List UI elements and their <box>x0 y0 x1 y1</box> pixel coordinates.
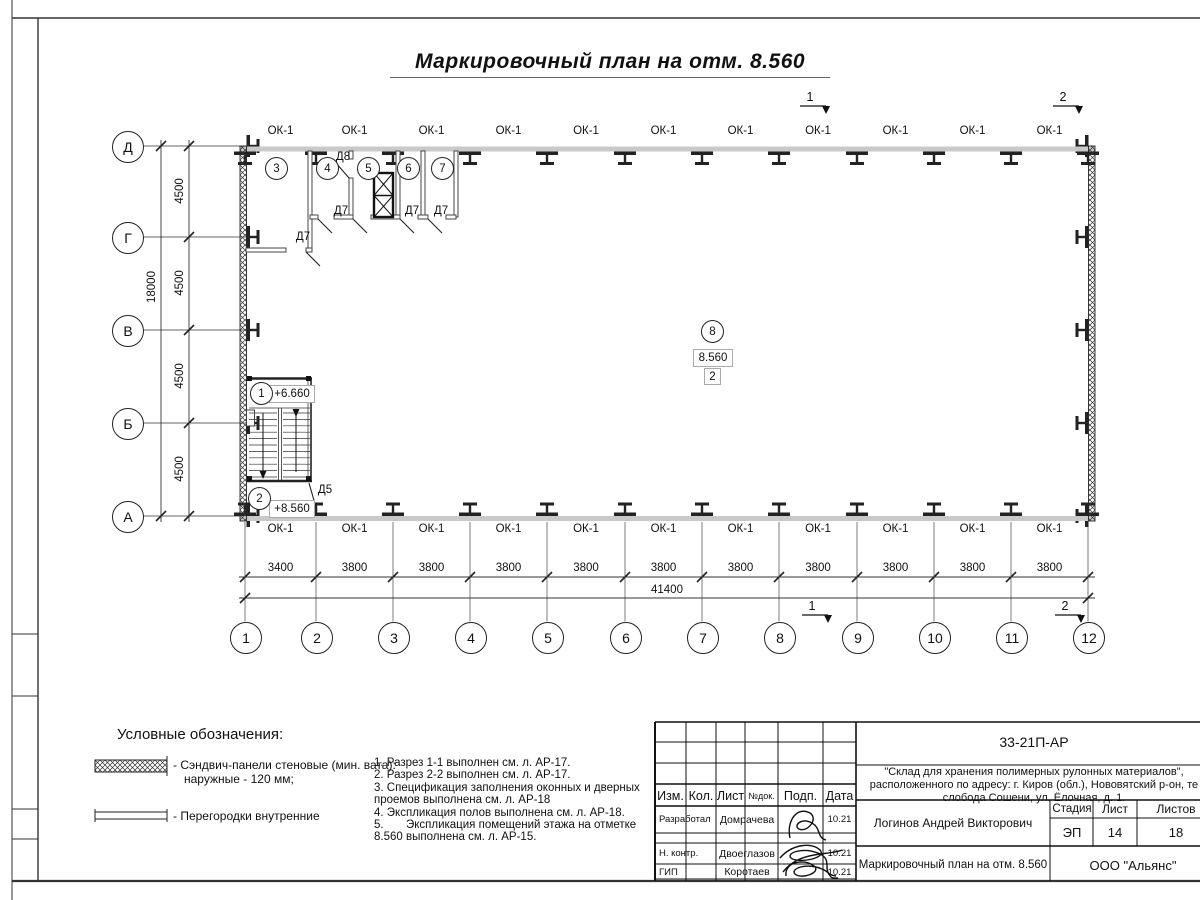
dim-total-left: 18000 <box>146 257 158 317</box>
note-line-5: 5. Экспликация помещений этажа на отметк… <box>374 819 636 831</box>
bottom-exterior-wall <box>240 516 1095 521</box>
window-label-bottom-6: ОК-1 <box>716 523 766 535</box>
doc-number: 33-21П-АР <box>856 726 1200 758</box>
dim-left-bay-0: 4500 <box>174 166 186 216</box>
section-mark-1-top: 1 <box>798 90 822 104</box>
window-label-top-4: ОК-1 <box>561 125 611 137</box>
dim-bottom-bay-4: 3800 <box>561 562 611 574</box>
elevation-box-room2: +8.560 <box>269 500 315 518</box>
grid-col-bubble-12: 12 <box>1073 622 1105 654</box>
window-label-top-10: ОК-1 <box>1025 125 1075 137</box>
grid-col-bubble-6: 6 <box>610 622 642 654</box>
grid-col-bubble-1: 1 <box>230 622 262 654</box>
top-exterior-wall <box>240 147 1095 152</box>
column-symbol <box>614 152 636 166</box>
drawing-title: Маркировочный план на отм. 8.560 <box>858 855 1048 875</box>
room-number-2: 2 <box>248 487 271 510</box>
signature-domracheva <box>789 811 826 840</box>
door-tag-d7-1: Д7 <box>326 205 356 217</box>
column-symbol <box>614 503 636 517</box>
dim-bottom-bay-2: 3800 <box>407 562 457 574</box>
tb-header-5: Дата <box>823 787 856 804</box>
grid-row-bubble-2: В <box>112 315 144 347</box>
sheet-label: Лист <box>1094 801 1136 817</box>
project-line-1: "Склад для хранения полимерных рулонных … <box>856 766 1200 778</box>
column-symbol <box>923 152 945 166</box>
grid-row-bubble-3: Б <box>112 408 144 440</box>
legend-sandwich-panel-symbol <box>95 760 167 772</box>
dim-bottom-bay-10: 3800 <box>1025 562 1075 574</box>
grid-col-bubble-2: 2 <box>301 622 333 654</box>
door-tag-d7-3: Д7 <box>426 205 456 217</box>
dim-bottom-bay-5: 3800 <box>639 562 689 574</box>
column-symbol <box>768 152 790 166</box>
sheets-total: 18 <box>1138 820 1200 844</box>
section-marks <box>800 106 1085 623</box>
window-label-bottom-3: ОК-1 <box>484 523 534 535</box>
column-symbol <box>846 503 868 517</box>
column-symbol <box>1076 319 1089 341</box>
right-exterior-wall <box>1089 146 1096 521</box>
stage-value: ЭП <box>1051 820 1093 844</box>
window-label-bottom-2: ОК-1 <box>407 523 457 535</box>
legend-item-1-label2: наружные - 120 мм; <box>184 772 294 786</box>
dim-left-bay-1: 4500 <box>174 258 186 308</box>
grid-col-bubble-7: 7 <box>687 622 719 654</box>
column-symbol <box>1000 503 1022 517</box>
grid-row-bubble-4: А <box>112 501 144 533</box>
dim-bottom-bay-9: 3800 <box>948 562 998 574</box>
column-symbol <box>382 503 404 517</box>
grid-col-bubble-3: 3 <box>378 622 410 654</box>
dim-bottom-bay-6: 3800 <box>716 562 766 574</box>
column-symbol <box>459 152 481 166</box>
window-label-bottom-8: ОК-1 <box>871 523 921 535</box>
legend-symbols <box>95 756 167 822</box>
tb-name-1: Двоеглазов <box>716 846 778 861</box>
window-label-top-9: ОК-1 <box>948 125 998 137</box>
room-number-1: 1 <box>250 382 273 405</box>
window-label-top-2: ОК-1 <box>407 125 457 137</box>
window-label-bottom-1: ОК-1 <box>330 523 380 535</box>
page-title: Маркировочный план на отм. 8.560 <box>390 50 830 78</box>
note-line-2: 3. Спецификация заполнения оконных и две… <box>374 782 640 794</box>
column-symbol <box>691 503 713 517</box>
column-symbol <box>247 319 260 341</box>
elevation-box-room8: 8.560 <box>693 349 733 367</box>
company-name: ООО "Альянс" <box>1051 855 1200 875</box>
column-symbol <box>768 503 790 517</box>
column-symbol <box>1000 152 1022 166</box>
elevation-box-room1: +6.660 <box>269 385 315 403</box>
drawing-sheet: Маркировочный план на отм. 8.560 18000 4… <box>0 0 1200 900</box>
room-number-7: 7 <box>431 157 454 180</box>
note-line-0: 1. Разрез 1-1 выполнен см. л. АР-17. <box>374 757 571 769</box>
sheets-label: Листов <box>1138 801 1200 817</box>
column-symbol <box>1076 226 1089 248</box>
window-label-bottom-7: ОК-1 <box>793 523 843 535</box>
section-mark-2-bottom: 2 <box>1053 599 1077 613</box>
window-label-top-3: ОК-1 <box>484 125 534 137</box>
grid-col-bubble-5: 5 <box>532 622 564 654</box>
tb-date-2: 10.21 <box>823 865 856 880</box>
door-tag-d5: Д5 <box>310 484 340 496</box>
tb-header-2: Лист <box>716 787 745 804</box>
room-number-8: 8 <box>701 320 724 343</box>
note-line-6: 8.560 выполнена см. л. АР-15. <box>374 831 536 843</box>
window-label-top-5: ОК-1 <box>639 125 689 137</box>
column-symbol <box>1076 412 1089 434</box>
tb-date-0: 10.21 <box>823 812 856 827</box>
legend-item-1-label: - Сэндвич-панели стеновые (мин. вата): <box>173 758 396 772</box>
room-number-3: 3 <box>265 157 288 180</box>
tb-date-1: 10.21 <box>823 846 856 861</box>
tb-role-2: ГИП <box>659 865 717 880</box>
note-line-3: проемов выполнена см. л. АР-18 <box>374 794 550 806</box>
room-number-5: 5 <box>357 157 380 180</box>
column-symbol <box>459 503 481 517</box>
window-label-bottom-10: ОК-1 <box>1025 523 1075 535</box>
grid-col-bubble-8: 8 <box>764 622 796 654</box>
room-number-6: 6 <box>397 157 420 180</box>
tb-role-0: Разработал <box>659 812 717 827</box>
tb-header-0: Изм. <box>655 787 686 804</box>
stair-arrow-down <box>260 471 267 479</box>
tb-role-1: Н. контр. <box>659 846 717 861</box>
window-label-bottom-4: ОК-1 <box>561 523 611 535</box>
legend-item-2-label: - Перегородки внутренние <box>173 809 320 823</box>
legend-heading: Условные обозначения: <box>117 726 283 743</box>
dim-bottom-bay-8: 3800 <box>871 562 921 574</box>
shaft <box>374 173 393 217</box>
window-label-top-7: ОК-1 <box>793 125 843 137</box>
window-label-top-8: ОК-1 <box>871 125 921 137</box>
window-label-bottom-9: ОК-1 <box>948 523 998 535</box>
window-label-top-0: ОК-1 <box>256 125 306 137</box>
tb-header-3: №док. <box>745 787 778 804</box>
walls <box>240 146 1095 521</box>
sheet-number: 14 <box>1094 820 1136 844</box>
approver-name: Логинов Андрей Викторович <box>858 812 1048 834</box>
project-line-2: расположенного по адресу: г. Киров (обл.… <box>856 779 1200 791</box>
tb-name-2: Коротаев <box>716 865 778 880</box>
dim-bottom-bay-0: 3400 <box>256 562 306 574</box>
note-line-4: 4. Экспликация полов выполнена см. л. АР… <box>374 807 625 819</box>
column-symbol <box>536 503 558 517</box>
dim-total-bottom: 41400 <box>637 584 697 596</box>
grid-row-bubble-0: Д <box>112 131 144 163</box>
floor-type-box-room8: 2 <box>704 368 721 385</box>
tb-name-0: Домрачева <box>716 812 778 827</box>
window-label-bottom-0: ОК-1 <box>256 523 306 535</box>
column-symbol <box>247 226 260 248</box>
dim-bottom-bay-7: 3800 <box>793 562 843 574</box>
grid-col-bubble-11: 11 <box>996 622 1028 654</box>
grid-row-bubble-1: Г <box>112 222 144 254</box>
column-symbol <box>691 152 713 166</box>
window-label-bottom-5: ОК-1 <box>639 523 689 535</box>
stage-label: Стадия <box>1051 801 1093 817</box>
tb-header-4: Подп. <box>778 787 823 804</box>
room-number-4: 4 <box>316 157 339 180</box>
window-label-top-1: ОК-1 <box>330 125 380 137</box>
dim-bottom-bay-1: 3800 <box>330 562 380 574</box>
grid-col-bubble-9: 9 <box>842 622 874 654</box>
note-line-1: 2. Разрез 2-2 выполнен см. л. АР-17. <box>374 769 571 781</box>
window-label-top-6: ОК-1 <box>716 125 766 137</box>
door-tag-d7-2: Д7 <box>397 205 427 217</box>
grid-col-bubble-10: 10 <box>919 622 951 654</box>
dim-left-bay-2: 4500 <box>174 351 186 401</box>
column-symbol <box>923 503 945 517</box>
door-tag-d7-0: Д7 <box>288 231 318 243</box>
dim-bottom-bay-3: 3800 <box>484 562 534 574</box>
tb-header-1: Кол. <box>686 787 716 804</box>
column-symbol <box>536 152 558 166</box>
grid-col-bubble-4: 4 <box>455 622 487 654</box>
dim-left-bay-3: 4500 <box>174 444 186 494</box>
left-exterior-wall <box>240 146 247 521</box>
section-mark-2-top: 2 <box>1051 90 1075 104</box>
legend-partition-symbol <box>95 809 167 822</box>
section-mark-1-bottom: 1 <box>800 599 824 613</box>
column-symbol <box>846 152 868 166</box>
